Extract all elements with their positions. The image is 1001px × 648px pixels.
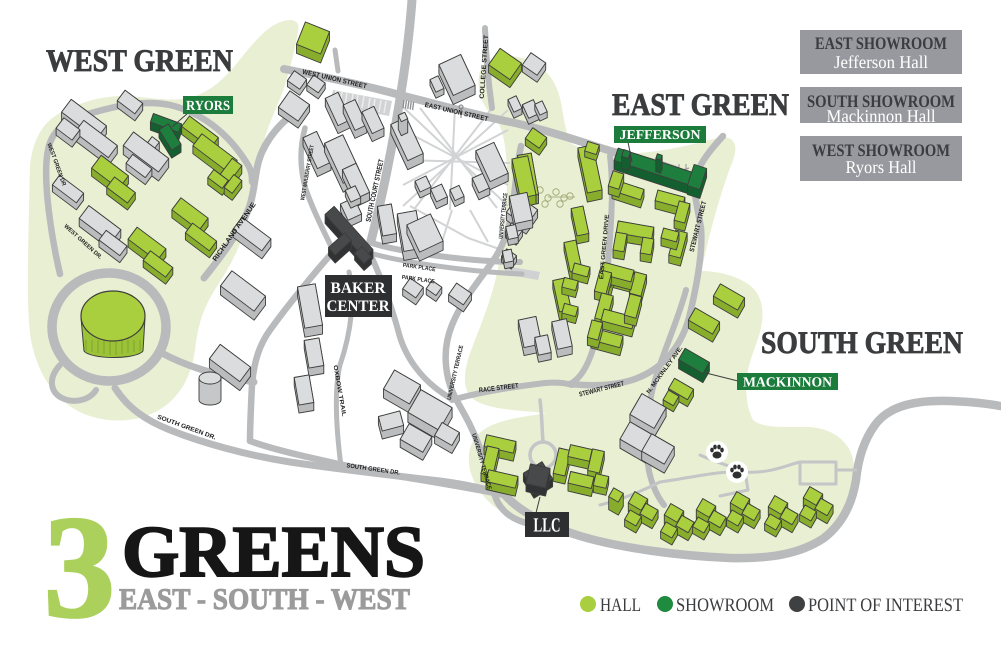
svg-text:LLC: LLC xyxy=(534,515,561,537)
svg-text:GREENS: GREENS xyxy=(122,511,425,592)
svg-text:Ryors Hall: Ryors Hall xyxy=(846,157,917,177)
svg-text:POINT OF INTEREST: POINT OF INTEREST xyxy=(808,595,963,616)
svg-text:SOUTH GREEN: SOUTH GREEN xyxy=(761,325,963,360)
svg-text:SHOWROOM: SHOWROOM xyxy=(676,595,774,616)
svg-text:CENTER: CENTER xyxy=(327,298,390,315)
svg-text:Jefferson Hall: Jefferson Hall xyxy=(834,52,928,72)
svg-text:Mackinnon Hall: Mackinnon Hall xyxy=(827,106,936,126)
svg-text:JEFFERSON: JEFFERSON xyxy=(620,127,701,142)
svg-text:EAST GREEN: EAST GREEN xyxy=(612,87,789,122)
svg-text:EAST - SOUTH - WEST: EAST - SOUTH - WEST xyxy=(119,583,410,616)
svg-text:WEST GREEN: WEST GREEN xyxy=(46,43,233,78)
svg-text:EAST SHOWROOM: EAST SHOWROOM xyxy=(815,33,947,53)
svg-text:RYORS: RYORS xyxy=(186,99,230,114)
svg-text:HALL: HALL xyxy=(600,595,641,616)
svg-text:3: 3 xyxy=(44,486,115,648)
svg-text:BAKER: BAKER xyxy=(331,280,386,297)
svg-text:MACKINNON: MACKINNON xyxy=(743,375,832,390)
